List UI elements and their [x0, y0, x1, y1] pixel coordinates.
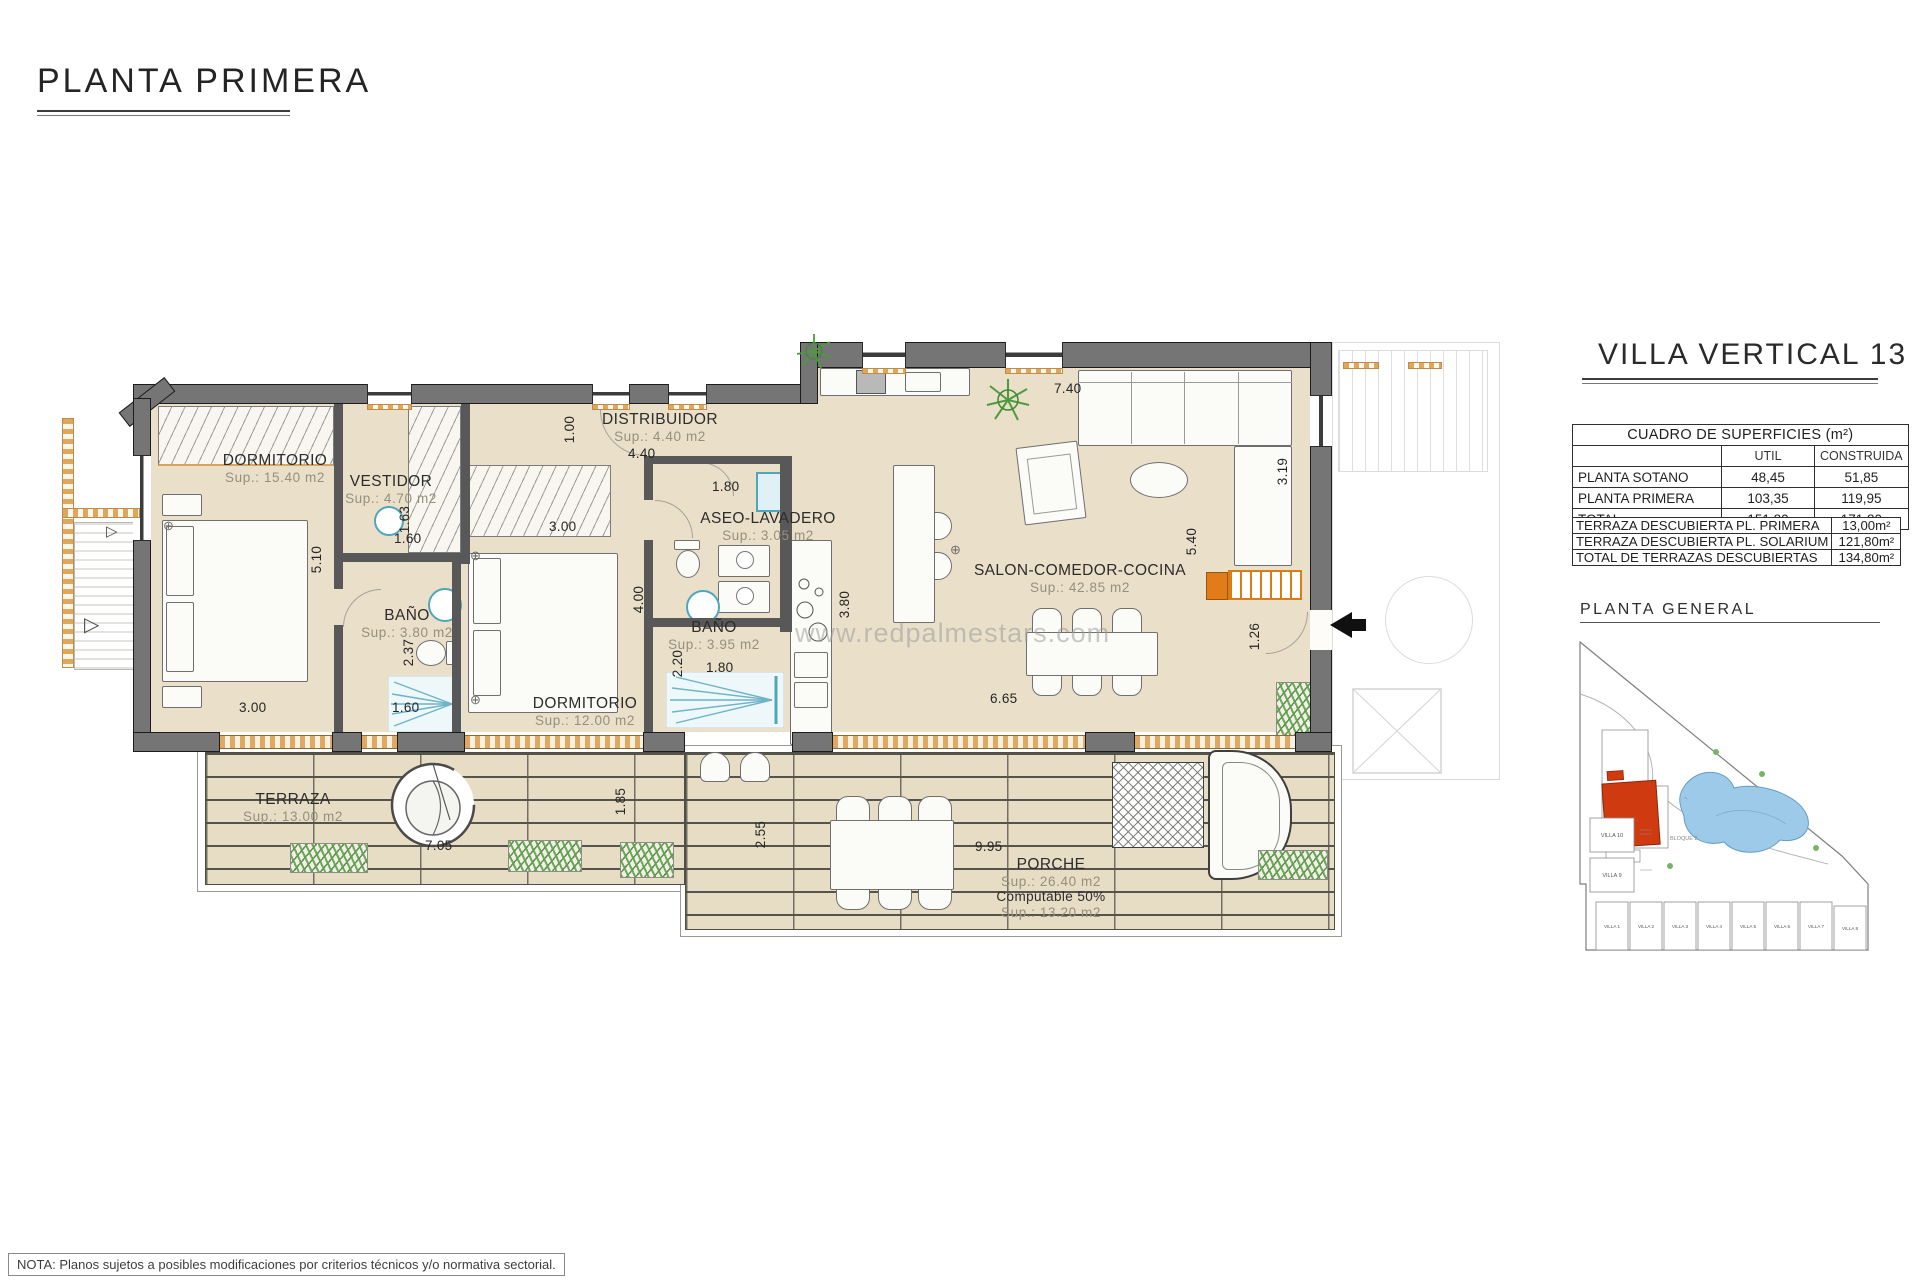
title-underline-2 [37, 115, 290, 116]
surface-col-util: UTIL [1722, 446, 1815, 467]
page-title: PLANTA PRIMERA [37, 62, 371, 101]
partition [644, 460, 653, 500]
exterior-rail-hatch [62, 418, 74, 668]
armchair-seat [1027, 454, 1077, 515]
stairs-to-solarium [1228, 570, 1302, 600]
daybed [1112, 762, 1204, 848]
villa-title-underline-2 [1582, 383, 1878, 384]
floorplan-page: { "page": { "title": "PLANTA PRIMERA", "… [0, 0, 1920, 1280]
dryer-drum [736, 587, 754, 605]
window-sill [592, 404, 630, 410]
kitchen-island [893, 465, 935, 623]
wall-left [133, 398, 151, 752]
terrace-label: TERRAZA DESCUBIERTA PL. SOLARIUM [1573, 534, 1832, 550]
pillow [473, 558, 501, 624]
svg-text:~: ~ [1684, 796, 1688, 802]
svg-text:VILLA 5: VILLA 5 [1740, 924, 1757, 929]
room-label-aseo-lavadero: ASEO-LAVADERO Sup.: 3.05 m2 [678, 510, 858, 543]
siteplan-map: ~ BLOQUE 2 VILLA 10 VILLA 9 VILLA 1 VILL… [1566, 634, 1886, 964]
shower [666, 672, 784, 728]
nightstand [162, 494, 202, 516]
closet [463, 465, 611, 537]
partition [452, 560, 461, 732]
table-row: TERRAZA DESCUBIERTA PL. SOLARIUM 121,80m… [1573, 534, 1901, 550]
dim-1-00: 1.00 [562, 416, 577, 443]
dim-4-40: 4.40 [628, 446, 655, 461]
room-label-salon: SALON-COMEDOR-COCINA Sup.: 42.85 m2 [970, 562, 1190, 595]
chair [740, 752, 770, 782]
dim-9-95: 9.95 [975, 839, 1002, 854]
glass-door [833, 735, 1085, 749]
window [133, 455, 151, 541]
window [668, 384, 707, 404]
room-name: DISTRIBUIDOR [585, 411, 735, 429]
room-area: Sup.: 13.00 m2 [222, 809, 364, 825]
terrace-label: TOTAL DE TERRAZAS DESCUBIERTAS [1573, 550, 1832, 566]
row-util: 48,45 [1722, 467, 1815, 488]
room-name: VESTIDOR [330, 473, 452, 491]
surface-table: CUADRO DE SUPERFICIES (m²) UTIL CONSTRUI… [1572, 424, 1909, 530]
room-name: TERRAZA [222, 791, 364, 809]
room-label-dormitorio-1: DORMITORIO Sup.: 15.40 m2 [205, 452, 345, 485]
room-name: BAÑO [660, 619, 768, 637]
glass-door [220, 735, 332, 749]
partition [334, 553, 461, 562]
window-sill [668, 404, 707, 410]
entrance-arrow-tail [1351, 619, 1366, 631]
room-name: ASEO-LAVADERO [678, 510, 858, 528]
dim-1-63: 1.63 [397, 506, 412, 533]
coffee-table [1130, 462, 1188, 498]
dim-1-60-banyo: 1.60 [392, 700, 419, 715]
dim-1-80-aseo: 1.80 [712, 479, 739, 494]
row-construida: 51,85 [1815, 467, 1909, 488]
entrance-doorway [1310, 610, 1332, 650]
room-area: Sup.: 4.70 m2 [330, 491, 452, 507]
wall-pillar [133, 732, 220, 752]
surface-table-caption: CUADRO DE SUPERFICIES (m²) [1573, 425, 1909, 446]
villa-label: VILLA 10 [1601, 833, 1623, 839]
room-area: Sup.: 4.40 m2 [585, 429, 735, 445]
symbol-register: ⊕ [950, 542, 961, 558]
wall-top-bedroom-wing [133, 384, 817, 404]
siteplan-title: PLANTA GENERAL [1580, 601, 1756, 619]
room-name: DORMITORIO [205, 452, 345, 470]
svg-text:VILLA 7: VILLA 7 [1808, 924, 1825, 929]
sofa-cushion-line [1184, 372, 1185, 444]
room-area-2: Sup.: 13.20 m2 [978, 905, 1124, 921]
surface-table-blank [1573, 446, 1722, 467]
dim-1-80-banyo2: 1.80 [706, 660, 733, 675]
room-area: Sup.: 12.00 m2 [510, 713, 660, 729]
title-underline [37, 110, 290, 112]
plant [795, 332, 833, 370]
row-construida: 119,95 [1815, 488, 1909, 509]
partition [780, 456, 792, 632]
window-sill [367, 404, 412, 410]
plant [985, 377, 1031, 423]
window-sill [1005, 368, 1063, 374]
room-area: Sup.: 26.40 m2 [978, 874, 1124, 890]
dim-5-40: 5.40 [1184, 528, 1199, 555]
stairs-marker [1206, 572, 1228, 600]
window [862, 342, 906, 368]
room-area: Sup.: 15.40 m2 [205, 470, 345, 486]
row-util: 103,35 [1722, 488, 1815, 509]
table-row: TOTAL DE TERRAZAS DESCUBIERTAS 134,80m² [1573, 550, 1901, 566]
glass-door [465, 735, 643, 749]
terrace-label: TERRAZA DESCUBIERTA PL. PRIMERA [1573, 518, 1832, 534]
dim-1-85: 1.85 [613, 788, 628, 815]
chair [700, 752, 730, 782]
kitchen-sink [905, 372, 941, 392]
room-name: DORMITORIO [510, 695, 660, 713]
nightstand [162, 686, 202, 708]
dim-4-00: 4.00 [631, 586, 646, 613]
room-label-porche: PORCHE Sup.: 26.40 m2 Computable 50% Sup… [978, 856, 1124, 920]
svg-text:VILLA 4: VILLA 4 [1706, 924, 1723, 929]
window-sill [862, 368, 906, 374]
toilet [416, 640, 446, 666]
exterior-stairs [74, 522, 134, 670]
room-name: SALON-COMEDOR-COCINA [970, 562, 1190, 580]
neighbour-circle [1385, 576, 1473, 664]
partition [461, 404, 470, 564]
room-label-distribuidor: DISTRIBUIDOR Sup.: 4.40 m2 [585, 411, 735, 444]
terrace-value: 13,00m² [1832, 518, 1901, 534]
glass-door [362, 735, 397, 749]
dim-2-55: 2.55 [753, 821, 768, 848]
room-label-banyo-2: BAÑO Sup.: 3.95 m2 [660, 619, 768, 652]
watermark: www.redpalmestars.com [795, 618, 1135, 649]
surface-col-construida: CONSTRUIDA [1815, 446, 1909, 467]
room-name: PORCHE [978, 856, 1124, 874]
glass-door [1135, 735, 1295, 749]
wall-pillar [792, 732, 833, 752]
row-label: PLANTA PRIMERA [1573, 488, 1722, 509]
wall-pillar [397, 732, 465, 752]
window-sill [1343, 362, 1379, 369]
symbol-register: ⊕ [470, 548, 481, 564]
svg-text:VILLA 2: VILLA 2 [1638, 924, 1655, 929]
partition [644, 456, 792, 464]
dim-3-19: 3.19 [1275, 458, 1290, 485]
planter [620, 842, 674, 878]
planter [508, 840, 582, 872]
pool [1680, 772, 1809, 852]
neighbour-elevator [1352, 688, 1442, 774]
symbol-register: ⊕ [470, 692, 481, 708]
dim-2-37: 2.37 [401, 639, 416, 666]
room-label-banyo-1: BAÑO Sup.: 3.80 m2 [348, 607, 466, 640]
terrace-table: TERRAZA DESCUBIERTA PL. PRIMERA 13,00m² … [1572, 517, 1901, 566]
room-label-terraza: TERRAZA Sup.: 13.00 m2 [222, 791, 364, 824]
symbol-register: ⊕ [163, 518, 174, 534]
svg-text:VILLA 6: VILLA 6 [1774, 924, 1791, 929]
wall-pillar [1295, 732, 1332, 752]
window [367, 384, 412, 404]
planter [1258, 850, 1328, 880]
direction-triangle-icon: ▷ [84, 612, 99, 637]
villa-row: VILLA 1 VILLA 2 VILLA 3 VILLA 4 VILLA 5 … [1596, 902, 1866, 950]
dim-6-65: 6.65 [990, 691, 1017, 706]
svg-text:VILLA 8: VILLA 8 [1842, 926, 1859, 931]
room-label-vestidor: VESTIDOR Sup.: 4.70 m2 [330, 473, 452, 506]
hanging-chair [388, 760, 478, 850]
washer-drum [736, 551, 754, 569]
dim-7-05: 7.05 [425, 838, 452, 853]
villa-title: VILLA VERTICAL 13 [1598, 338, 1907, 372]
svg-text:VILLA 1: VILLA 1 [1604, 924, 1621, 929]
row-label: PLANTA SOTANO [1573, 467, 1722, 488]
room-area: Sup.: 42.85 m2 [970, 580, 1190, 596]
table-row: TERRAZA DESCUBIERTA PL. PRIMERA 13,00m² [1573, 518, 1901, 534]
wall-pillar [1085, 732, 1135, 752]
pillow [473, 630, 501, 696]
table-row: PLANTA PRIMERA 103,35 119,95 [1573, 488, 1909, 509]
dim-3-00-dormitorio: 3.00 [239, 700, 266, 715]
partition [334, 625, 343, 732]
window [1005, 342, 1063, 368]
room-name: BAÑO [348, 607, 466, 625]
table-row: PLANTA SOTANO 48,45 51,85 [1573, 467, 1909, 488]
wall-pillar [332, 732, 362, 752]
exterior-rail [62, 508, 140, 518]
sofa-cushion-line [1238, 372, 1239, 444]
svg-text:VILLA 3: VILLA 3 [1672, 924, 1689, 929]
sofa-cushion-line [1131, 372, 1132, 444]
entrance-arrow-icon [1330, 612, 1352, 638]
sofa-back-line [1078, 382, 1292, 383]
pillow [166, 526, 194, 596]
direction-triangle-icon: ▷ [106, 522, 118, 540]
villa-label: VILLA 9 [1602, 873, 1621, 879]
toilet [676, 550, 700, 578]
dim-7-40: 7.40 [1054, 381, 1081, 396]
footer-note: NOTA: Planos sujetos a posibles modifica… [8, 1253, 565, 1276]
terrace-value: 121,80m² [1832, 534, 1901, 550]
dim-1-26: 1.26 [1247, 623, 1262, 650]
window [1310, 395, 1332, 447]
bloque-label: BLOQUE 2 [1670, 836, 1698, 842]
room-area: Sup.: 3.05 m2 [678, 528, 858, 544]
dim-5-10: 5.10 [309, 546, 324, 573]
siteplan-underline [1580, 622, 1880, 623]
dim-3-00-armario: 3.00 [549, 519, 576, 534]
room-label-dormitorio-2: DORMITORIO Sup.: 12.00 m2 [510, 695, 660, 728]
pillow [166, 602, 194, 672]
dim-2-20: 2.20 [670, 650, 685, 677]
wall-pillar [643, 732, 685, 752]
room-note: Computable 50% [978, 889, 1124, 905]
window [592, 384, 630, 404]
dim-1-60-vestidor: 1.60 [394, 531, 421, 546]
villa-title-underline [1582, 378, 1878, 380]
window-sill [1408, 362, 1442, 369]
terrace-value: 134,80m² [1832, 550, 1901, 566]
planter [290, 843, 368, 873]
outdoor-table [830, 820, 954, 890]
dim-3-80: 3.80 [837, 591, 852, 618]
kitchen-drawer [794, 682, 828, 708]
kitchen-drawer [794, 652, 828, 678]
